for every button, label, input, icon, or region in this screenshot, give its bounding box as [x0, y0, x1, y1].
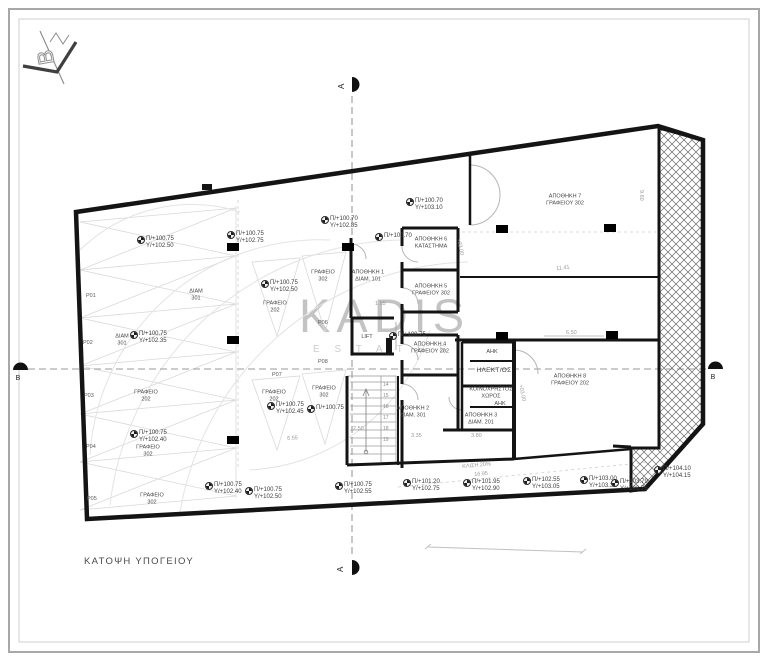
- parking-space-label: P06: [318, 320, 328, 326]
- room-label: ΑΠΟΘΗΚΗ 8ΓΡΑΦΕΙΟΥ 202: [551, 374, 589, 387]
- elevation-text: Π/+100.75Y/+102.35: [139, 331, 167, 344]
- benchmark-icon: [131, 332, 137, 338]
- elevation-label: Π/+100.75Y/+102.55: [336, 482, 372, 495]
- benchmark-icon: [376, 234, 382, 240]
- elevation-text: Π/+100.75Y/+102.50: [146, 236, 174, 249]
- parking-space-label: P05: [87, 496, 97, 502]
- elevation-label: Π/+100.75Y/+102.35: [131, 331, 167, 344]
- room-label: ΑΠΟΘΗΚΗ 7ΓΡΑΦΕΙΟΥ 302: [546, 194, 584, 207]
- elevation-label: Π/+101.95Y/+102.90: [464, 479, 500, 492]
- benchmark-icon: [524, 478, 530, 484]
- parking-space-label: P03: [84, 393, 94, 399]
- elevation-text: Π/+100.75Y/+102.75: [236, 231, 264, 244]
- elevation-text: Π/+103.79Y/+103.75: [620, 479, 648, 492]
- room-label: ΑΠΟΘΗΚΗ 2ΔΙΑΜ. 301: [397, 406, 429, 419]
- benchmark-icon: [138, 237, 144, 243]
- dimension-label: +03.00: [455, 238, 464, 256]
- benchmark-icon: [336, 483, 342, 489]
- parking-space-label: P01: [86, 293, 96, 299]
- elevation-text: Π/+100.75Y/+102.45: [276, 402, 304, 415]
- room-label: ΑΠΟΘΗΚΗ 6ΚΑΤΑΣΤΗΜΑ: [415, 237, 448, 250]
- room-label: LIFT: [361, 334, 372, 341]
- room-label: ΓΡΑΦΕΙΟ302: [136, 445, 160, 458]
- plan-title: ΚΑΤΟΨΗ ΥΠΟΓΕΙΟΥ: [84, 556, 194, 567]
- elevation-text: Π/+100.70Y/+102.85: [330, 216, 358, 229]
- room-label: ΑΗΚ: [494, 401, 505, 408]
- benchmark-icon: [206, 483, 212, 489]
- elevation-label: Π/+100.75Y/+102.75: [228, 231, 264, 244]
- elevation-label: Π/+100.70Y/+102.85: [322, 216, 358, 229]
- elevation-label: Π/+100.75Y/+102.50: [262, 280, 298, 293]
- elevation-label: Π/+100.75Y/+102.45: [268, 402, 304, 415]
- stair-step-number: 19: [383, 437, 389, 443]
- benchmark-icon: [655, 467, 661, 473]
- room-label: ΚΟΙΝΟΧΡΗΣΤΟΣΧΩΡΟΣ: [469, 387, 512, 400]
- elevation-text: Π/+102.55Y/+103.05: [532, 477, 560, 490]
- parking-space-label: P08: [318, 359, 328, 365]
- elevation-text: Π/+101.95Y/+102.90: [472, 479, 500, 492]
- elevation-label: Π/+101.20Y/+102.75: [404, 479, 440, 492]
- elevation-text: Π/+100.75: [398, 332, 426, 339]
- dimension-label: 6.55: [287, 435, 298, 442]
- benchmark-icon: [407, 199, 413, 205]
- dimension-label: 1.55: [375, 301, 386, 307]
- benchmark-icon: [322, 217, 328, 223]
- elevation-label: Π/+100.75: [390, 332, 426, 339]
- dimension-label: 16.95: [474, 471, 488, 478]
- elevation-label: Π/+100.75Y/+102.40: [131, 430, 167, 443]
- benchmark-icon: [308, 406, 314, 412]
- room-label: ΓΡΑΦΕΙΟ202: [134, 390, 158, 403]
- elevation-text: Π/+100.75: [316, 405, 344, 412]
- dimension-label: 9.60: [638, 190, 644, 201]
- room-label: ΑΠΟΘΗΚΗ 4ΓΡΑΦΕΙΟΥ 202: [411, 342, 449, 355]
- elevation-text: Π/+100.70: [384, 233, 412, 240]
- elevation-label: Π/+100.75: [308, 405, 344, 412]
- elevation-text: Π/+104.10Y/+104.15: [663, 466, 691, 479]
- room-label: ΔΙΑΜ301: [115, 334, 128, 347]
- room-label: ΔΙΑΜ301: [189, 289, 202, 302]
- elevation-text: Π/+100.75Y/+102.55: [344, 482, 372, 495]
- benchmark-icon: [390, 333, 396, 339]
- elevation-label: Π/+100.70Y/+103.10: [407, 198, 443, 211]
- benchmark-icon: [246, 488, 252, 494]
- stair-step-number: 15: [383, 393, 389, 399]
- elevation-label: Π/+104.10Y/+104.15: [655, 466, 691, 479]
- room-label: ΓΡΑΦΕΙΟ302: [312, 386, 336, 399]
- elevation-text: Π/+100.75Y/+102.40: [139, 430, 167, 443]
- elevation-text: Π/+100.75Y/+102.50: [254, 487, 282, 500]
- floor-plan-canvas: KADIS E S T A T E S B: [0, 0, 768, 661]
- elevation-label: Π/+100.75Y/+102.50: [246, 487, 282, 500]
- room-label: ΑΠΟΘΗΚΗ 1ΔΙΑΜ. 101: [352, 270, 384, 283]
- room-label: ΑΠΟΘΗΚΗ 5ΓΡΑΦΕΙΟΥ 302: [412, 284, 450, 297]
- benchmark-icon: [262, 281, 268, 287]
- elevation-text: Π/+100.75Y/+102.50: [270, 280, 298, 293]
- elevation-label: Π/+102.55Y/+103.05: [524, 477, 560, 490]
- benchmark-icon: [581, 477, 587, 483]
- parking-space-label: P02: [83, 340, 93, 346]
- benchmark-icon: [228, 232, 234, 238]
- elevation-text: Π/+100.70Y/+103.10: [415, 198, 443, 211]
- benchmark-icon: [131, 431, 137, 437]
- benchmark-icon: [268, 403, 274, 409]
- room-label: ΓΡΑΦΕΙΟ202: [262, 390, 286, 403]
- stair-step-number: 18: [383, 426, 389, 432]
- stair-step-number: 16: [383, 404, 389, 410]
- dimension-label: +03.00: [517, 384, 526, 402]
- benchmark-icon: [612, 480, 618, 486]
- room-label: ΓΡΑΦΕΙΟ302: [140, 493, 164, 506]
- room-label: ΓΡΑΦΕΙΟ302: [311, 270, 335, 283]
- room-label: ΑΗΚ: [486, 349, 497, 356]
- parking-space-label: P07: [272, 372, 282, 378]
- elevation-text: Π/+100.75Y/+102.40: [214, 482, 242, 495]
- dimension-label: ΚΛΙΣΗ 20%: [462, 461, 491, 469]
- room-label: ΑΠΟΘΗΚΗ 3ΔΙΑΜ. 201: [465, 413, 497, 426]
- stair-step-number: 17: [383, 415, 389, 421]
- dimension-label: 3.80: [471, 433, 482, 439]
- elevation-text: Π/+101.20Y/+102.75: [412, 479, 440, 492]
- stair-step-number: 14: [383, 382, 389, 388]
- elevation-label: Π/+100.70: [376, 233, 412, 240]
- elevation-label: Π/+100.75Y/+102.50: [138, 236, 174, 249]
- room-label: ΗΛΕΚΤ/ΟΣ: [477, 368, 512, 375]
- elevation-label: Π/+103.79Y/+103.75: [612, 479, 648, 492]
- dimension-label: 6.50: [566, 330, 577, 336]
- dimension-label: 3.35: [411, 433, 422, 439]
- parking-space-label: P04: [86, 444, 96, 450]
- dimension-label: 11.41: [556, 265, 570, 272]
- elevation-label: Π/+100.75Y/+102.40: [206, 482, 242, 495]
- room-label: ΓΡΑΦΕΙΟ202: [263, 301, 287, 314]
- benchmark-icon: [464, 480, 470, 486]
- benchmark-icon: [404, 480, 410, 486]
- dimension-label: 2.50: [353, 426, 364, 432]
